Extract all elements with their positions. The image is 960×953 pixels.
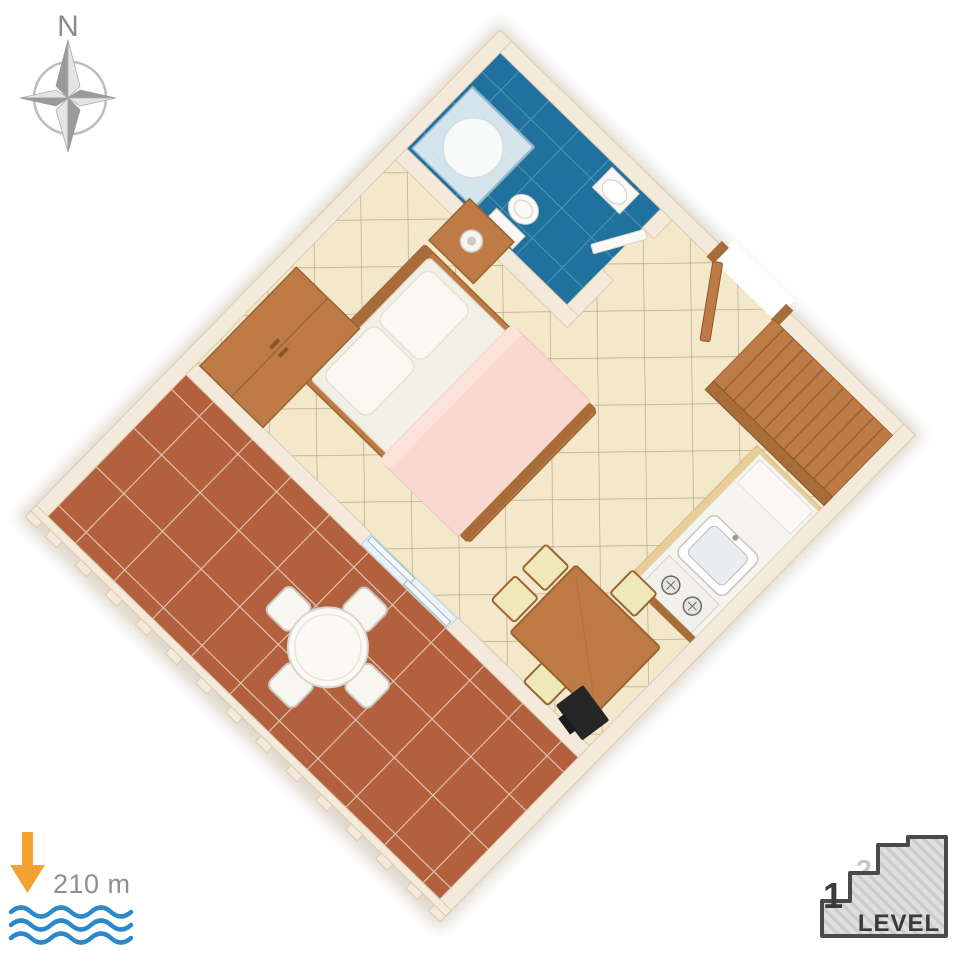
scene: N 210 m 2 1 LEVEL	[0, 0, 960, 953]
sea-distance-value: 210 m	[53, 869, 131, 899]
level-label: LEVEL	[858, 910, 940, 937]
sea-distance-indicator: 210 m	[10, 832, 131, 943]
floor-plan	[17, 17, 928, 930]
current-level-number: 1	[823, 875, 843, 916]
screenshot-canvas: N 210 m 2 1 LEVEL	[0, 0, 960, 953]
compass-north-label: N	[57, 10, 79, 43]
compass: N	[20, 10, 116, 152]
level-indicator: 2 1 LEVEL	[822, 837, 946, 937]
waves-icon	[11, 908, 131, 943]
compass-star	[20, 40, 116, 152]
down-arrow-icon	[10, 832, 45, 893]
